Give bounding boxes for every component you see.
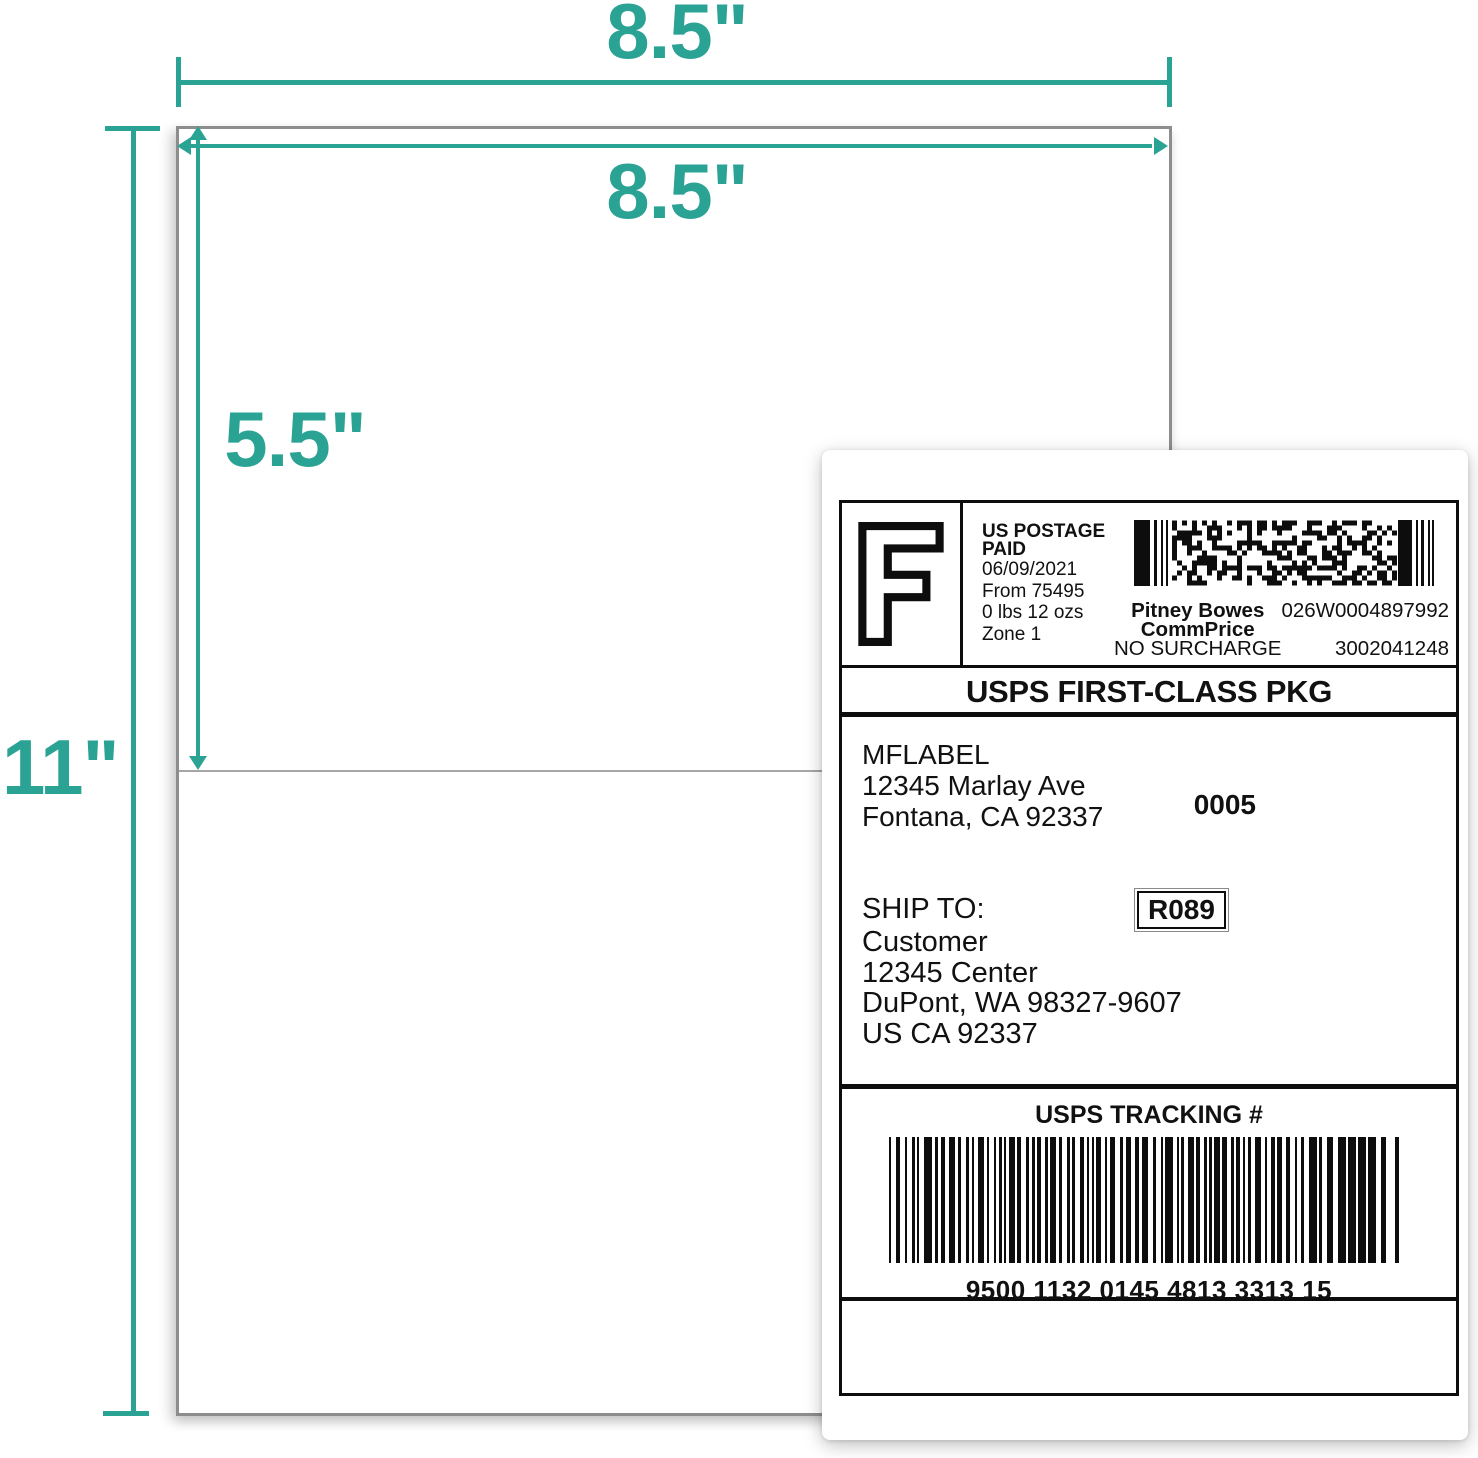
arrow-down-icon	[189, 756, 207, 770]
postage-indicia-letter	[842, 503, 963, 665]
dimension-label-sheet-width-inner: 8.5"	[577, 152, 777, 230]
postage-info: US POSTAGE PAID 06/09/2021 From 75495 0 …	[982, 523, 1105, 645]
postage-line: PAID	[982, 541, 1105, 559]
postage-section: US POSTAGE PAID 06/09/2021 From 75495 0 …	[842, 503, 1456, 668]
shipping-label: US POSTAGE PAID 06/09/2021 From 75495 0 …	[839, 500, 1459, 1396]
recipient-address: Customer 12345 Center DuPont, WA 98327-9…	[862, 927, 1182, 1049]
recipient-city: DuPont, WA 98327-9607	[862, 988, 1182, 1019]
letter-f-icon	[857, 521, 945, 647]
half-height-arrow	[196, 140, 200, 758]
dimension-tick-left-bottom	[103, 1411, 149, 1416]
carrier-serial: 3002041248	[1281, 639, 1449, 658]
batch-code: 0005	[1194, 789, 1256, 821]
postage-weight: 0 lbs 12 ozs	[982, 602, 1105, 624]
postage-2d-barcode	[1134, 520, 1434, 586]
recipient-street: 12345 Center	[862, 958, 1182, 989]
carrier-block: Pitney Bowes CommPrice NO SURCHARGE 026W…	[1114, 601, 1443, 658]
arrow-right-icon	[1154, 137, 1168, 155]
sender-address: MFLABEL 12345 Marlay Ave Fontana, CA 923…	[862, 739, 1103, 832]
route-code: R089	[1137, 891, 1226, 929]
recipient-country: US CA 92337	[862, 1019, 1182, 1050]
sender-city: Fontana, CA 92337	[862, 801, 1103, 832]
dimension-line-top	[176, 80, 1172, 85]
tracking-number: 9500 1132 0145 4813 3313 15	[842, 1275, 1456, 1306]
address-section: MFLABEL 12345 Marlay Ave Fontana, CA 923…	[842, 717, 1456, 1089]
dimension-label-half-height: 5.5"	[210, 400, 380, 478]
sender-street: 12345 Marlay Ave	[862, 770, 1103, 801]
shipping-label-card: US POSTAGE PAID 06/09/2021 From 75495 0 …	[822, 450, 1468, 1440]
postage-date: 06/09/2021	[982, 559, 1105, 581]
tracking-heading: USPS TRACKING #	[842, 1101, 1456, 1130]
dimension-tick-top-right	[1167, 57, 1172, 107]
postage-zone: Zone 1	[982, 624, 1105, 646]
product-image: 8.5" 11" 8.5" 5.5" US POSTAGE	[0, 0, 1478, 1458]
sender-name: MFLABEL	[862, 739, 1103, 770]
tracking-section: USPS TRACKING # 9500 1132 0145 4813 3313…	[842, 1089, 1456, 1301]
dimension-tick-top-left	[176, 57, 181, 107]
dimension-line-left	[131, 126, 136, 1416]
carrier-surcharge: NO SURCHARGE	[1114, 639, 1281, 658]
carrier-meter-id: 026W0004897992	[1281, 601, 1449, 620]
dimension-tick-left-top	[105, 126, 160, 131]
tracking-barcode	[889, 1137, 1399, 1263]
dimension-label-sheet-height: 11"	[2, 728, 132, 806]
arrow-up-icon	[189, 126, 207, 140]
service-banner: USPS FIRST-CLASS PKG	[842, 668, 1456, 717]
postage-origin: From 75495	[982, 581, 1105, 603]
dimension-label-sheet-width-top: 8.5"	[577, 0, 777, 70]
ship-to-heading: SHIP TO:	[862, 893, 985, 926]
recipient-name: Customer	[862, 927, 1182, 958]
empty-section	[842, 1301, 1456, 1393]
